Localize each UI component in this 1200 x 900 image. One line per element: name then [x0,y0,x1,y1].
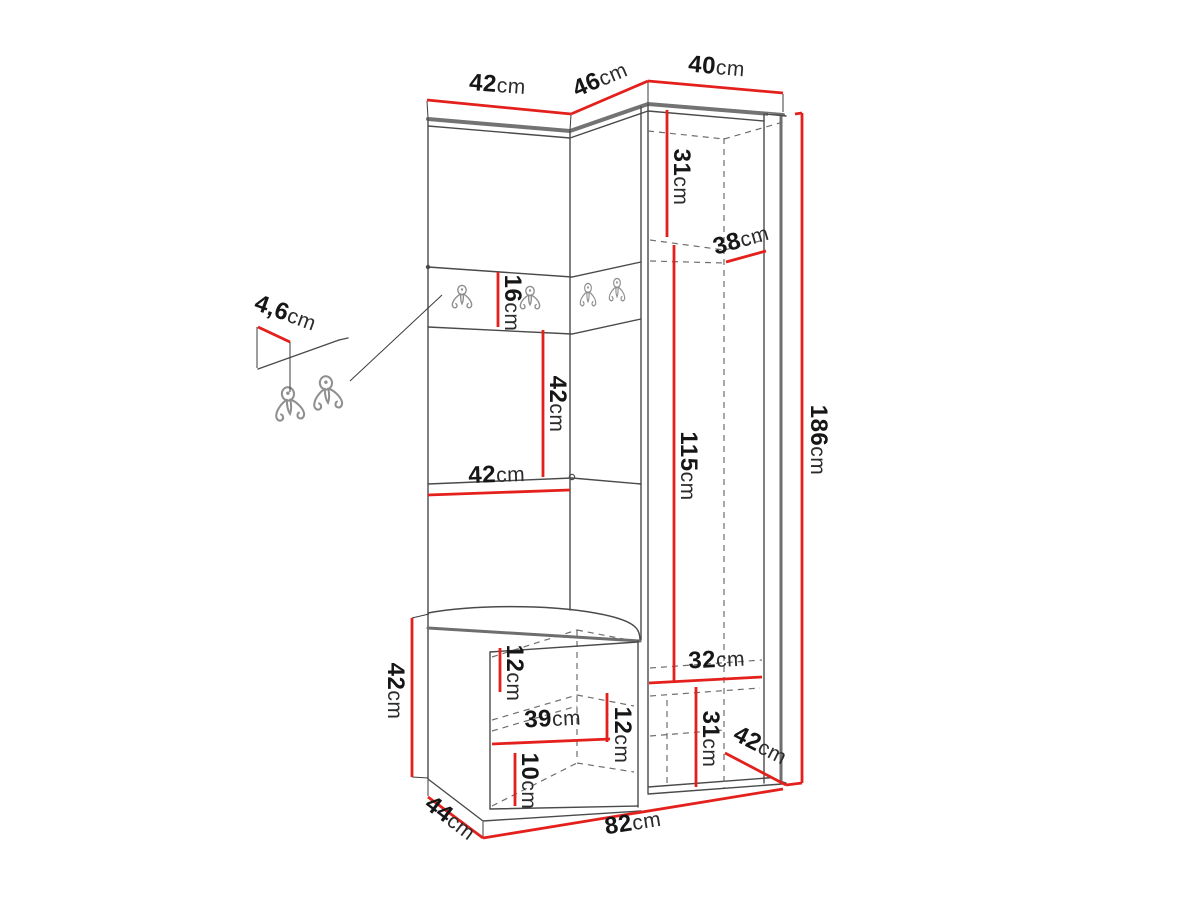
coat-hook-icon [452,285,471,307]
svg-text:39cm: 39cm [524,704,582,734]
svg-text:46cm: 46cm [569,56,632,103]
svg-text:42cm: 42cm [544,376,571,433]
dimension-hook-panel-height: 16cm [498,272,526,331]
seat-board [428,628,640,641]
svg-text:115cm: 115cm [675,431,702,500]
svg-text:32cm: 32cm [688,645,746,675]
furniture-dimension-drawing: 42cm 46cm 40cm 31cm 38cm 16cm 42cm 42cm … [0,0,1200,900]
dimension-mid-back-height: 42cm [543,330,571,477]
dimension-bottom-compartment-height: 31cm [696,687,724,787]
dimension-bench-bottom-spacing: 10cm [515,753,543,810]
dimension-shelf-depth: 38cm [710,219,772,262]
svg-text:42cm: 42cm [382,663,409,720]
dimension-bottom-inner-width: 32cm [649,645,762,683]
dimension-tall-inner-height: 115cm [674,245,702,682]
dimension-bench-height: 42cm [382,618,412,777]
hook-rail-band [426,262,641,334]
svg-text:12cm: 12cm [501,645,528,702]
dimension-top-left-width: 42cm [427,69,571,114]
svg-text:31cm: 31cm [697,711,724,768]
svg-text:44cm: 44cm [420,790,482,846]
svg-text:12cm: 12cm [609,707,636,764]
diagram-canvas: 42cm 46cm 40cm 31cm 38cm 16cm 42cm 42cm … [0,0,1200,900]
svg-text:38cm: 38cm [710,219,772,261]
dimension-total-height: 186cm [786,113,832,785]
coat-hook-icon [580,283,595,305]
dimension-upper-shelf-height: 31cm [667,110,695,237]
dimension-left-panel-width: 42cm [428,460,570,495]
svg-text:31cm: 31cm [668,149,695,206]
svg-text:42cm: 42cm [468,69,526,100]
svg-text:40cm: 40cm [687,51,746,83]
svg-text:42cm: 42cm [468,460,526,489]
dimension-top-right-width: 40cm [648,51,783,93]
extension-lines [412,82,783,837]
dimension-hook-panel-thickness: 4,6cm [251,289,320,342]
svg-text:16cm: 16cm [499,275,526,332]
svg-text:186cm: 186cm [805,405,832,476]
coat-hooks-main [452,278,624,308]
open-door [766,113,786,783]
svg-text:10cm: 10cm [516,753,543,810]
dimension-top-mid-width: 46cm [569,56,648,114]
dimension-bench-inner-width: 39cm [492,704,610,744]
svg-text:82cm: 82cm [603,805,663,841]
dimension-seat-thickness: 12cm [500,645,528,702]
coat-hook-icon [609,278,624,300]
dimension-bench-depth: 44cm [420,790,483,846]
